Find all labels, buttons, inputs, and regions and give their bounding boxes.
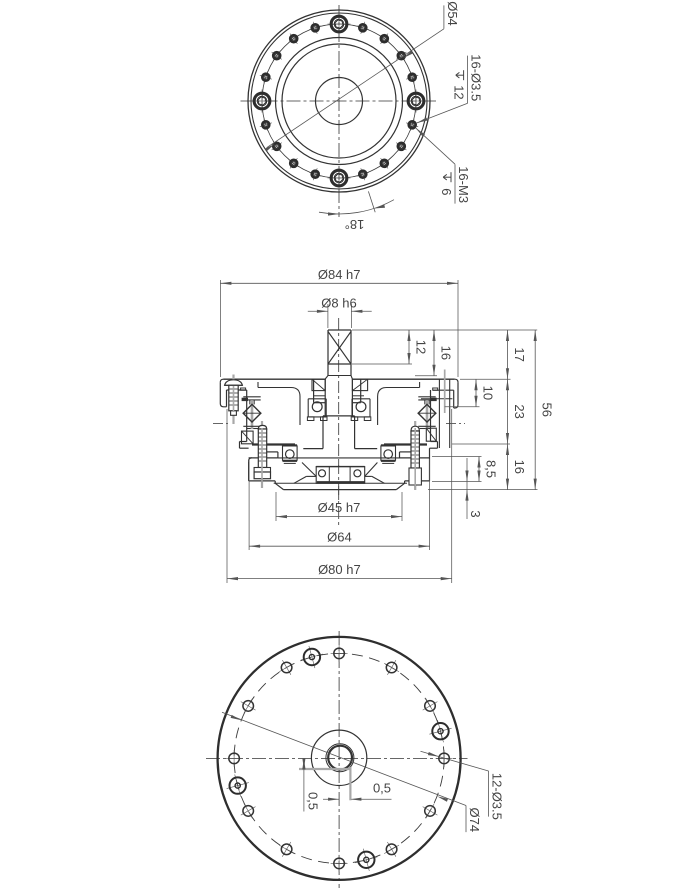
- svg-text:12: 12: [414, 340, 429, 354]
- svg-text:18°: 18°: [345, 217, 365, 232]
- svg-text:16: 16: [439, 346, 454, 360]
- svg-text:Ø84 h7: Ø84 h7: [318, 267, 361, 282]
- svg-text:23: 23: [512, 404, 527, 418]
- svg-text:17: 17: [512, 347, 527, 361]
- svg-text:16-Ø3.5: 16-Ø3.5: [469, 54, 484, 101]
- svg-text:Ø8 h6: Ø8 h6: [321, 296, 356, 311]
- svg-text:6: 6: [439, 188, 454, 195]
- svg-text:3: 3: [468, 510, 483, 517]
- svg-text:Ø54: Ø54: [445, 1, 460, 26]
- svg-text:Ø45 h7: Ø45 h7: [318, 500, 361, 515]
- svg-text:Ø80 h7: Ø80 h7: [318, 562, 361, 577]
- svg-text:12: 12: [452, 85, 467, 99]
- svg-text:12-Ø3.5: 12-Ø3.5: [490, 773, 505, 820]
- svg-text:Ø64: Ø64: [327, 530, 352, 545]
- svg-text:Ø74: Ø74: [467, 808, 482, 833]
- svg-text:0,5: 0,5: [373, 781, 391, 796]
- svg-text:8,5: 8,5: [484, 460, 499, 478]
- svg-text:16-M3: 16-M3: [456, 166, 471, 203]
- svg-text:56: 56: [540, 403, 555, 417]
- svg-text:0,5: 0,5: [306, 792, 321, 810]
- svg-text:16: 16: [512, 460, 527, 474]
- svg-text:10: 10: [481, 386, 496, 400]
